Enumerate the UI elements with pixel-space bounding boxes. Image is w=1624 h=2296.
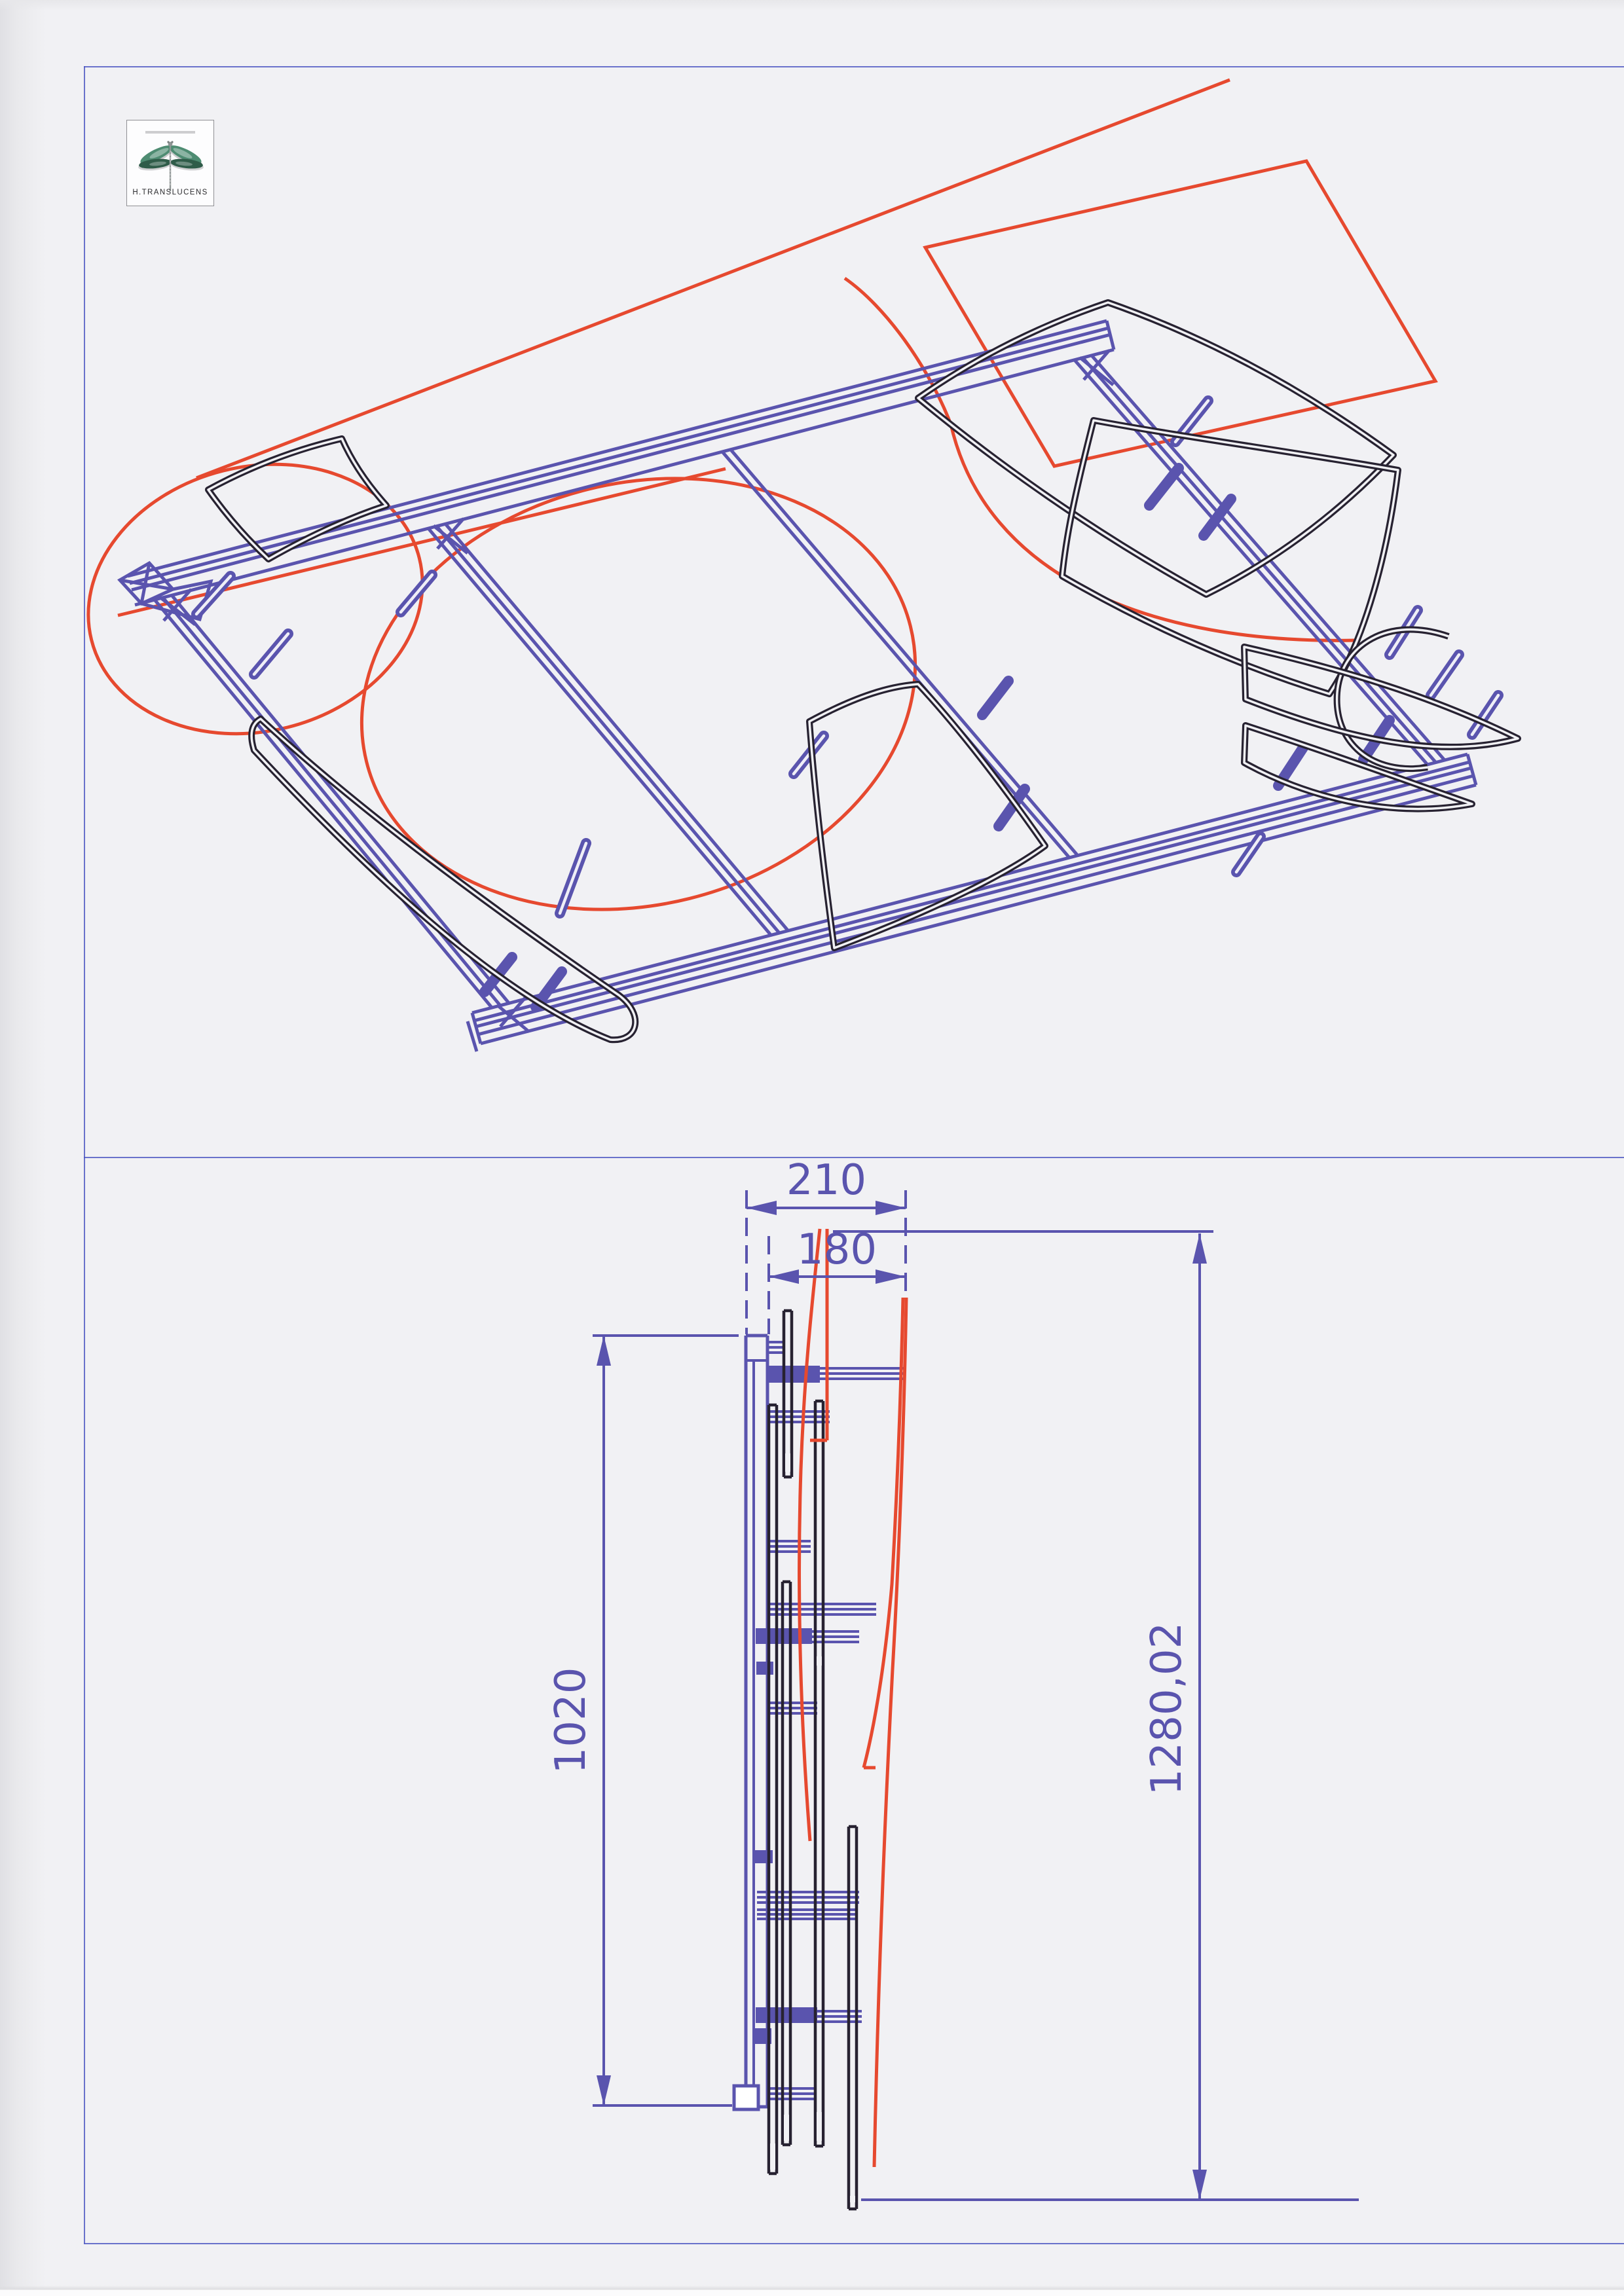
plate-foot [734,2086,758,2109]
scanned-drawing-page: H.TRANSLUCENS [0,0,1624,2296]
side-elevation-view: 210 180 1020 [547,1156,1359,2209]
hanging-rods [769,1311,857,2209]
sail-panel-outlines [208,302,1518,1040]
dimension-1020: 1020 [547,1336,739,2105]
mounting-plate [734,1336,767,2109]
isometric-wireframe-view [60,80,1518,1051]
dimension-value-1280-02: 1280,02 [1143,1622,1191,1796]
dimension-1280-02: 1280,02 [833,1231,1359,2200]
dimension-value-180: 180 [797,1226,877,1274]
technical-drawing-canvas: 210 180 1020 [0,0,1624,2296]
dimension-value-1020: 1020 [547,1667,595,1774]
dimension-180: 180 [769,1226,906,1334]
dimension-value-210: 210 [786,1156,866,1205]
